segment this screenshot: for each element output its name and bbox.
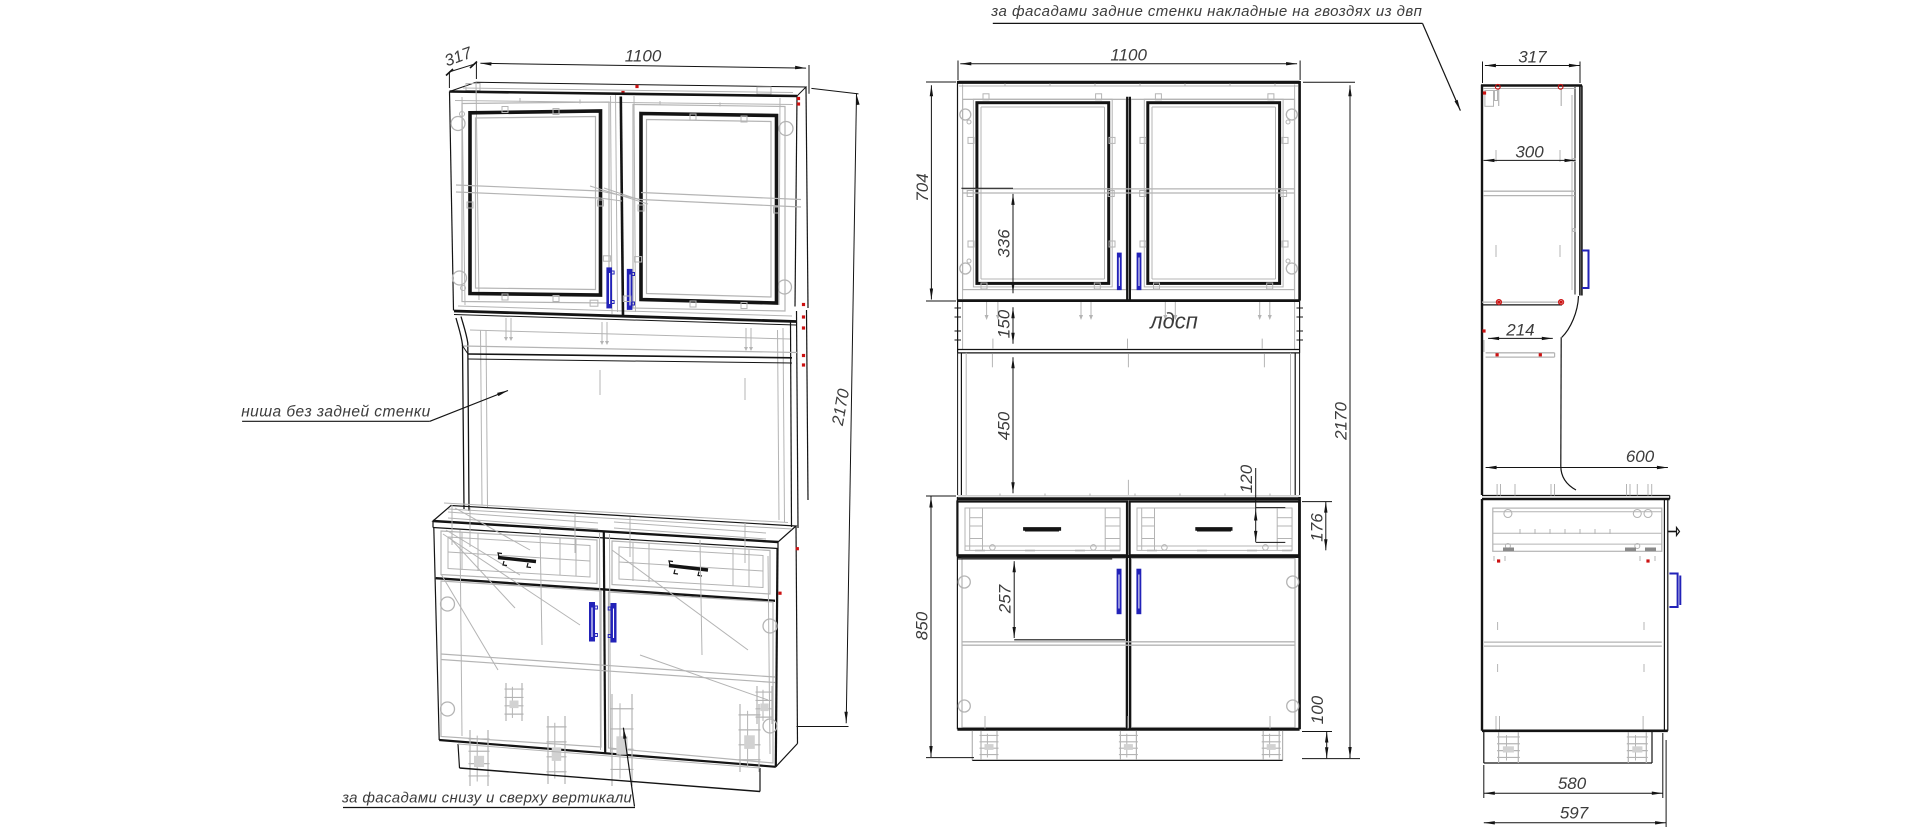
svg-text:300: 300 [1515,142,1544,161]
svg-text:214: 214 [1505,320,1534,339]
svg-text:1100: 1100 [1110,46,1147,65]
svg-text:317: 317 [1518,48,1547,67]
svg-text:за фасадами задние стенки накл: за фасадами задние стенки накладные на г… [990,3,1422,20]
svg-text:257: 257 [996,584,1015,614]
svg-text:100: 100 [1308,695,1327,724]
svg-text:850: 850 [913,611,932,640]
svg-text:336: 336 [995,229,1014,258]
svg-text:120: 120 [1237,464,1256,493]
svg-text:597: 597 [1560,804,1589,823]
svg-text:704: 704 [913,173,932,201]
svg-text:ниша без задней стенки: ниша без задней стенки [241,404,431,421]
svg-text:600: 600 [1626,447,1655,466]
svg-text:2170: 2170 [1332,402,1351,441]
svg-text:450: 450 [995,411,1014,440]
svg-text:1100: 1100 [625,47,662,66]
svg-text:за фасадами снизу и сверху вер: за фасадами снизу и сверху вертикали [341,790,633,807]
svg-text:лдсп: лдсп [1148,309,1198,334]
svg-text:176: 176 [1307,513,1326,542]
svg-text:580: 580 [1558,774,1587,793]
svg-text:150: 150 [995,309,1014,338]
